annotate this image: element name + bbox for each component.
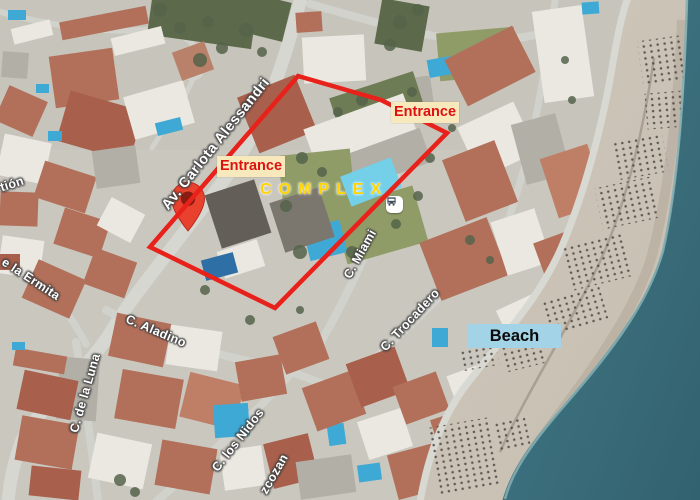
complex-label: COMPLEX: [260, 181, 388, 199]
entrance-label-east: Entrance: [391, 102, 459, 123]
entrance-label-west: Entrance: [217, 156, 285, 177]
bus-stop-icon[interactable]: [386, 196, 403, 213]
route-overlay: [0, 0, 700, 500]
satellite-map[interactable]: Entrance Entrance COMPLEX Beach Av. Carl…: [0, 0, 700, 500]
beach-label: Beach: [468, 324, 561, 348]
